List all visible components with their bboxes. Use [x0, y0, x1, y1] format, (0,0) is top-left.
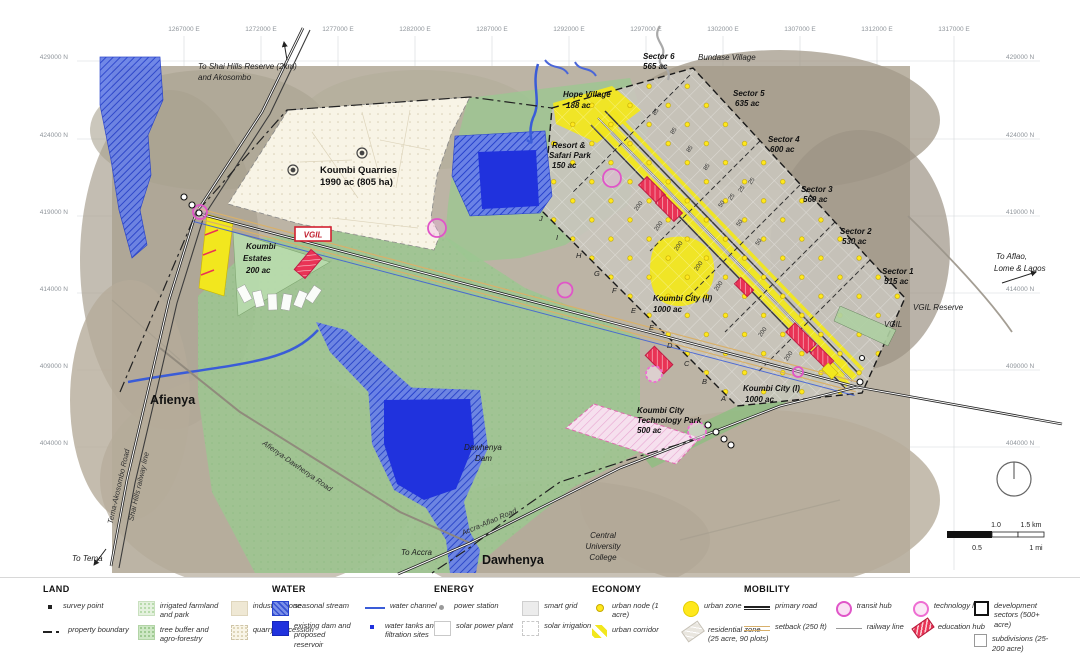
scale-km-1: 1.0 [991, 522, 1001, 529]
grid-label-e: 1282000 E [399, 26, 431, 33]
grid-label-n: 419000 N [40, 209, 68, 216]
power-station-icon [434, 601, 449, 614]
to-aflao-label-2: Lome & Lagos [994, 264, 1046, 273]
koumbi-city-1-area: 1000 ac [745, 395, 774, 404]
proposed-reservoir [478, 150, 539, 209]
grid-label-e: 1302000 E [707, 26, 739, 33]
scale-mi-1: 0.5 [972, 545, 982, 552]
koumbi-city-2-label: Koumbi City (II) [653, 294, 712, 303]
dam-reservoir-swatch [272, 621, 289, 636]
grid-label-n: 414000 N [40, 286, 68, 293]
map-canvas: 1267000 E 1272000 E 1277000 E 1282000 E … [0, 0, 1080, 577]
grid-label-e: 1287000 E [476, 26, 508, 33]
koumbi-city-2-area: 1000 ac [653, 305, 682, 314]
vgil-label-box: VGIL [295, 227, 331, 241]
legend-item-property-boundary: property boundary [43, 625, 129, 644]
grid-label-n: 404000 N [1006, 440, 1034, 447]
vgil-small-label: VGIL [884, 320, 902, 329]
subdivision-letter: G [594, 269, 600, 278]
legend-item-subdivisions: subdivisions (25-200 acre) [974, 634, 1056, 653]
subdivision-letter: D [667, 341, 673, 350]
resort-label-2: Safari Park [549, 151, 591, 160]
to-accra-label: To Accra [401, 548, 433, 557]
subdivision-letter: J [538, 214, 543, 223]
transit-hub-icon [836, 601, 852, 617]
survey-point-icon [43, 601, 58, 614]
legend-title-zones [974, 584, 1056, 596]
koumbi-city-1-label: Koumbi City (I) [743, 384, 800, 393]
tech-park-label-1: Koumbi City [637, 406, 685, 415]
subdivision-letter: A [720, 394, 726, 403]
legend-group-energy: ENERGY power station solar power plant s… [434, 584, 591, 636]
scale-km-2: 1.5 km [1020, 522, 1041, 529]
bundase-village-label: Bundase Village [698, 53, 756, 62]
koumbi-estates-area: 200 ac [245, 266, 271, 275]
scale-mi-2: 1 mi [1029, 545, 1043, 552]
solar-power-plant-swatch [434, 621, 451, 636]
map-legend: LAND survey point property boundary irri… [0, 577, 1080, 654]
subdivision-letter: F [612, 286, 617, 295]
sector-4-area: 600 ac [770, 145, 795, 154]
grid-label-n: 409000 N [40, 363, 68, 370]
sector-5-area: 635 ac [735, 99, 760, 108]
afienya-label: Afienya [150, 393, 196, 407]
legend-group-mobility: MOBILITY primary road setback (250 ft) t… [744, 584, 985, 634]
legend-title-energy: ENERGY [434, 584, 591, 596]
urban-zone-icon [683, 601, 699, 617]
sector-2-area: 530 ac [842, 237, 867, 246]
solar-irrigation-swatch [522, 621, 539, 636]
koumbi-quarries-area: 1990 ac (805 ha) [320, 177, 393, 188]
grid-label-n: 429000 N [1006, 54, 1034, 61]
dawhenya-dam-label-1: Dawhenya [464, 443, 502, 452]
vgil-reserve-label: VGIL Reserve [913, 303, 964, 312]
to-shai-hills-label: To Shai Hills Reserve (2km) [198, 62, 297, 71]
primary-road-icon [744, 606, 770, 610]
legend-item-urban-node: urban node (1 acre) [592, 601, 674, 620]
education-hub-icon [911, 617, 934, 638]
legend-item-seasonal-stream: seasonal stream [272, 601, 356, 616]
grid-label-e: 1267000 E [168, 26, 200, 33]
cuc-label-2: University [585, 542, 621, 551]
water-channel-icon [365, 607, 385, 609]
legend-item-primary-road: primary road [744, 601, 827, 617]
quarry-concession-swatch [231, 625, 248, 640]
legend-item-urban-corridor: urban corridor [592, 625, 674, 644]
grid-label-n: 424000 N [1006, 132, 1034, 139]
legend-item-smart-grid: smart grid [522, 601, 591, 616]
legend-group-zones: development sectors (500+ acre) subdivis… [974, 584, 1056, 653]
legend-item-railway-line: railway line [836, 622, 904, 634]
smart-grid-swatch [522, 601, 539, 616]
grid-label-n: 409000 N [1006, 363, 1034, 370]
grid-label-e: 1317000 E [938, 26, 970, 33]
master-plan-map-page: 1267000 E 1272000 E 1277000 E 1282000 E … [0, 0, 1080, 654]
water-tanks-icon [365, 621, 380, 634]
grid-label-n: 404000 N [40, 440, 68, 447]
legend-item-solar-power-plant: solar power plant [434, 621, 513, 636]
subdivisions-icon [974, 634, 987, 647]
hope-village-label: Hope Village [563, 90, 611, 99]
subdivision-letter: H [576, 251, 582, 260]
legend-item-power-station: power station [434, 601, 513, 616]
cuc-label-3: College [589, 553, 617, 562]
resort-area: 150 ac [552, 161, 577, 170]
sector-4-label: Sector 4 [768, 135, 800, 144]
legend-item-dam-reservoir: existing dam and proposed reservoir [272, 621, 356, 649]
sector-5-label: Sector 5 [733, 89, 765, 98]
tech-park-area: 500 ac [637, 426, 662, 435]
tech-park-label-2: Technology Park [637, 416, 702, 425]
cuc-label-1: Central [590, 531, 616, 540]
technology-hub-icon [913, 601, 929, 617]
legend-item-development-sectors: development sectors (500+ acre) [974, 601, 1056, 629]
resort-label-1: Resort & [552, 141, 586, 150]
sector-6-area: 565 ac [643, 62, 668, 71]
sector-1-label: Sector 1 [882, 267, 914, 276]
sector-1-area: 515 ac [884, 277, 909, 286]
hope-village-area: 188 ac [566, 101, 591, 110]
development-sectors-icon [974, 601, 989, 616]
koumbi-estates-label-2: Estates [243, 254, 272, 263]
grid-label-e: 1272000 E [245, 26, 277, 33]
grid-label-n: 424000 N [40, 132, 68, 139]
dawhenya-dam-label-2: Dam [475, 454, 492, 463]
grid-label-e: 1307000 E [784, 26, 816, 33]
north-compass [997, 462, 1031, 496]
legend-title-mobility: MOBILITY [744, 584, 985, 596]
grid-label-e: 1277000 E [322, 26, 354, 33]
legend-item-solar-irrigation: solar irrigation [522, 621, 591, 636]
koumbi-estates-label-1: Koumbi [246, 242, 277, 251]
setback-icon [744, 626, 770, 631]
dawhenya-label: Dawhenya [482, 553, 545, 567]
sector-2-label: Sector 2 [840, 227, 872, 236]
to-shai-hills-label-2: and Akosombo [198, 73, 252, 82]
sector-6-label: Sector 6 [643, 52, 675, 61]
industrial-zone-swatch [231, 601, 248, 616]
to-aflao-label-1: To Aflao, [996, 252, 1027, 261]
residential-zone-icon [681, 620, 705, 642]
urban-node-icon [592, 601, 607, 614]
irrigated-farmland-swatch [138, 601, 155, 616]
sector-3-area: 560 ac [803, 195, 828, 204]
legend-title-water: WATER [272, 584, 447, 596]
legend-item-irrigated-farmland: irrigated farmland and park [138, 601, 222, 620]
legend-item-tree-buffer: tree buffer and agro-forestry [138, 625, 222, 644]
subdivision-letter: C [684, 359, 690, 368]
scale-bar: 1.0 1.5 km 0.5 1 mi [947, 522, 1044, 552]
legend-item-survey-point: survey point [43, 601, 129, 620]
railway-line-icon [836, 628, 862, 629]
grid-label-e: 1312000 E [861, 26, 893, 33]
tree-buffer-swatch [138, 625, 155, 640]
vgil-label: VGIL [304, 231, 323, 240]
koumbi-quarries-label: Koumbi Quarries [320, 165, 397, 176]
subdivision-letter: I [556, 233, 558, 242]
subdivision-letter: B [702, 377, 707, 386]
legend-item-setback: setback (250 ft) [744, 622, 827, 634]
sector-3-label: Sector 3 [801, 185, 833, 194]
grid-label-n: 419000 N [1006, 209, 1034, 216]
legend-group-water: WATER seasonal stream existing dam and p… [272, 584, 447, 649]
urban-corridor-icon [592, 625, 607, 638]
grid-label-n: 429000 N [40, 54, 68, 61]
seasonal-stream-swatch [272, 601, 289, 616]
grid-label-e: 1292000 E [553, 26, 585, 33]
legend-item-transit-hub: transit hub [836, 601, 904, 617]
property-boundary-icon [43, 631, 63, 633]
to-tema-label: To Tema [72, 554, 103, 563]
grid-label-n: 414000 N [1006, 286, 1034, 293]
